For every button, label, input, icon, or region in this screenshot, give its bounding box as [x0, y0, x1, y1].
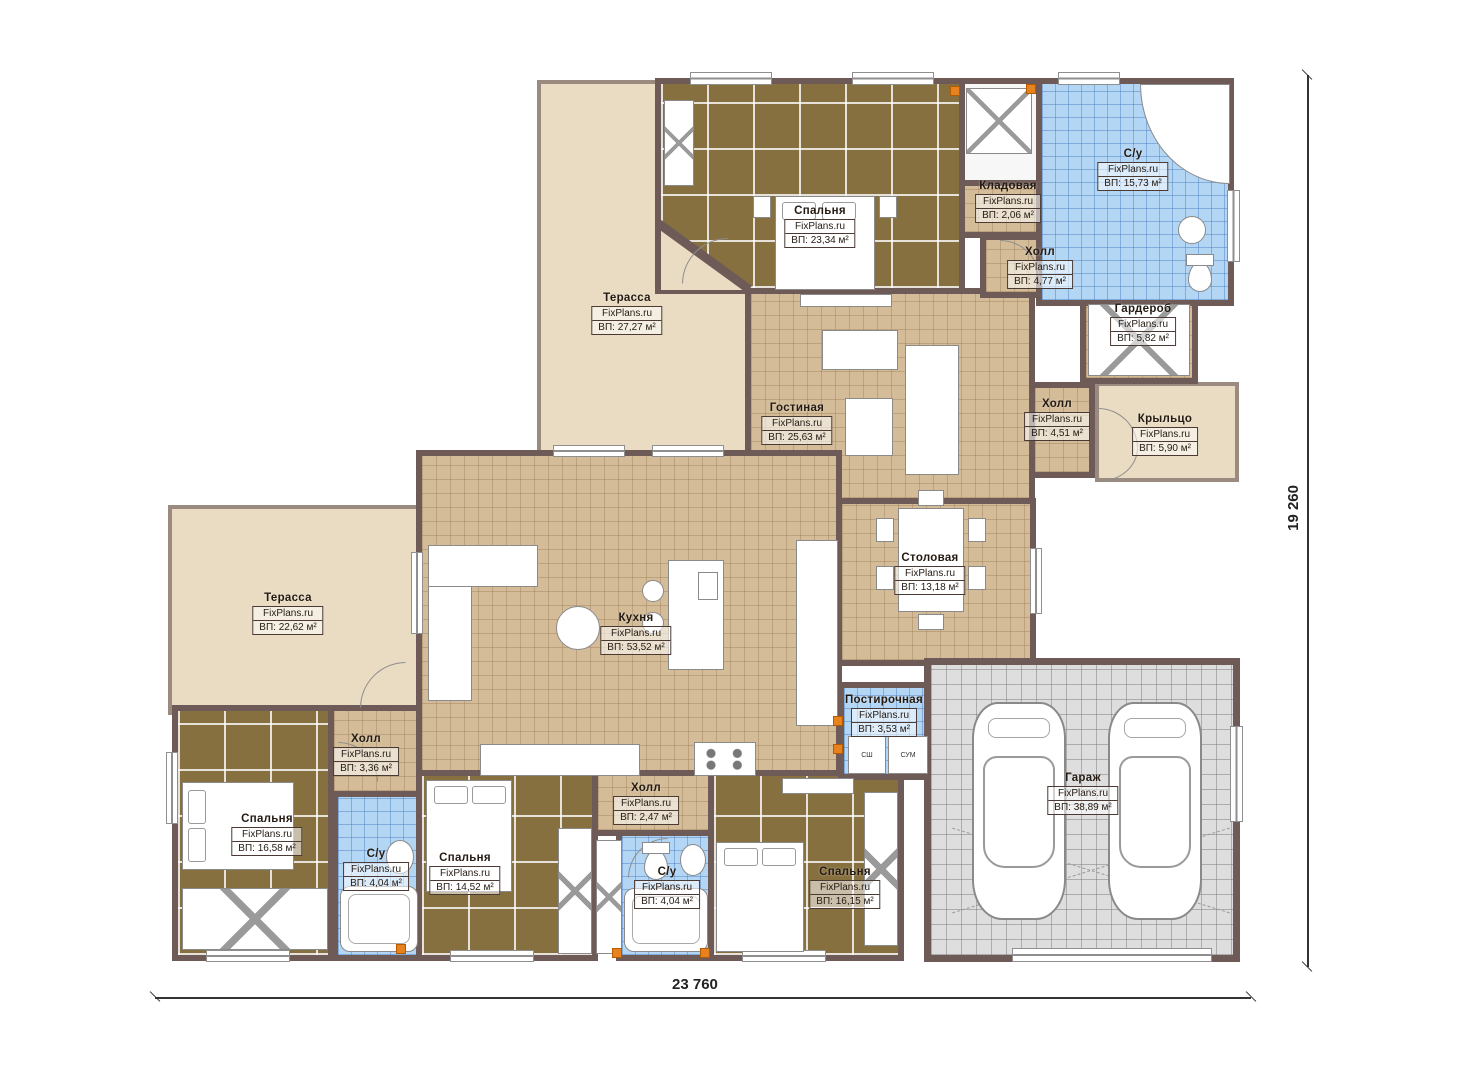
wardrobe-icon — [664, 100, 694, 186]
nightstand-icon — [879, 196, 897, 218]
outlet-icon — [833, 716, 843, 726]
stove-icon — [694, 742, 756, 776]
chair-icon — [918, 614, 944, 630]
closet-icon — [596, 840, 622, 954]
window — [411, 552, 423, 634]
floor-plan: СШ СУМ Терасса FixPlans.ru ВП: 27,27 м² … — [0, 0, 1474, 1080]
window — [852, 72, 934, 85]
pillow-icon — [724, 848, 758, 866]
window — [1230, 726, 1243, 822]
chair-icon — [876, 566, 894, 590]
pillow-icon — [472, 786, 506, 804]
dryer-box: СУМ — [888, 736, 928, 774]
coffee-table-icon — [845, 398, 893, 456]
stool-icon — [642, 580, 664, 602]
counter-icon — [480, 744, 640, 776]
dimension-line-right — [1307, 75, 1309, 967]
room-label-bedroom-bottom-mid: Спальня FixPlans.ru ВП: 14,52 м² — [429, 852, 500, 895]
room-label-dining: Столовая FixPlans.ru ВП: 13,18 м² — [894, 552, 965, 595]
sink-icon — [1178, 216, 1206, 244]
room-label-hall-bottom-mid: Холл FixPlans.ru ВП: 2,47 м² — [613, 782, 679, 825]
window — [206, 950, 290, 962]
room-label-bath-bottom-mid: С/у FixPlans.ru ВП: 4,04 м² — [634, 866, 700, 909]
sofa-icon — [822, 330, 898, 370]
window — [166, 752, 178, 824]
car-icon — [1108, 702, 1202, 920]
chair-icon — [968, 518, 986, 542]
outlet-icon — [396, 944, 406, 954]
dresser-icon — [782, 778, 854, 794]
washer-label: СШ — [861, 752, 872, 759]
outlet-icon — [833, 744, 843, 754]
room-label-bath-bottom-left: С/у FixPlans.ru ВП: 4,04 м² — [343, 848, 409, 891]
outlet-icon — [612, 948, 622, 958]
pillow-icon — [188, 790, 206, 824]
toilet-icon — [1188, 262, 1212, 292]
pillow-icon — [762, 848, 796, 866]
room-label-hall-entry: Холл FixPlans.ru ВП: 4,51 м² — [1024, 398, 1090, 441]
outlet-icon — [950, 86, 960, 96]
tv-stand-icon — [800, 294, 892, 307]
dimension-height-label: 19 260 — [1285, 485, 1302, 531]
island-sink-icon — [698, 572, 718, 600]
window — [1058, 72, 1120, 85]
room-label-hall-top: Холл FixPlans.ru ВП: 4,77 м² — [1007, 246, 1073, 289]
room-label-bedroom-top: Спальня FixPlans.ru ВП: 23,34 м² — [784, 205, 855, 248]
room-label-kitchen: Кухня FixPlans.ru ВП: 53,52 м² — [600, 612, 671, 655]
window — [690, 72, 772, 85]
outlet-icon — [1026, 84, 1036, 94]
room-label-laundry: Постирочная FixPlans.ru ВП: 3,53 м² — [845, 694, 923, 737]
room-label-pantry: Кладовая FixPlans.ru ВП: 2,06 м² — [975, 180, 1041, 223]
pillow-icon — [434, 786, 468, 804]
room-label-hall-bottom-left: Холл FixPlans.ru ВП: 3,36 м² — [333, 733, 399, 776]
wardrobe-icon — [182, 888, 328, 950]
room-label-living: Гостиная FixPlans.ru ВП: 25,63 м² — [761, 402, 832, 445]
table-icon — [556, 606, 600, 650]
dimension-line-bottom — [155, 997, 1251, 999]
chair-icon — [876, 518, 894, 542]
room-label-bedroom-bottom-right: Спальня FixPlans.ru ВП: 16,15 м² — [809, 866, 880, 909]
garage-door — [1012, 948, 1212, 962]
room-label-bath-top: С/у FixPlans.ru ВП: 15,73 м² — [1097, 148, 1168, 191]
chair-icon — [918, 490, 944, 506]
bathtub-icon — [340, 886, 418, 952]
shower-icon — [966, 88, 1032, 154]
dimension-width-label: 23 760 — [672, 976, 718, 993]
window — [1227, 190, 1240, 262]
sofa-icon — [905, 345, 959, 475]
room-label-bedroom-bottom-left: Спальня FixPlans.ru ВП: 16,58 м² — [231, 813, 302, 856]
window — [553, 445, 625, 457]
pillow-icon — [188, 828, 206, 862]
room-label-porch: Крыльцо FixPlans.ru ВП: 5,90 м² — [1132, 413, 1198, 456]
corner-sofa-icon — [428, 545, 538, 587]
window — [1030, 548, 1042, 614]
dryer-label: СУМ — [900, 752, 915, 759]
window — [652, 445, 724, 457]
counter-icon — [796, 540, 838, 726]
room-label-wardrobe: Гардероб FixPlans.ru ВП: 5,82 м² — [1110, 303, 1176, 346]
chair-icon — [968, 566, 986, 590]
window — [450, 950, 534, 962]
wardrobe-icon — [558, 828, 592, 954]
room-label-garage: Гараж FixPlans.ru ВП: 38,89 м² — [1047, 772, 1118, 815]
room-label-terrace-left: Терасса FixPlans.ru ВП: 22,62 м² — [252, 592, 323, 635]
room-label-terrace-top: Терасса FixPlans.ru ВП: 27,27 м² — [591, 292, 662, 335]
outlet-icon — [700, 948, 710, 958]
nightstand-icon — [753, 196, 771, 218]
washer-box: СШ — [848, 736, 886, 774]
